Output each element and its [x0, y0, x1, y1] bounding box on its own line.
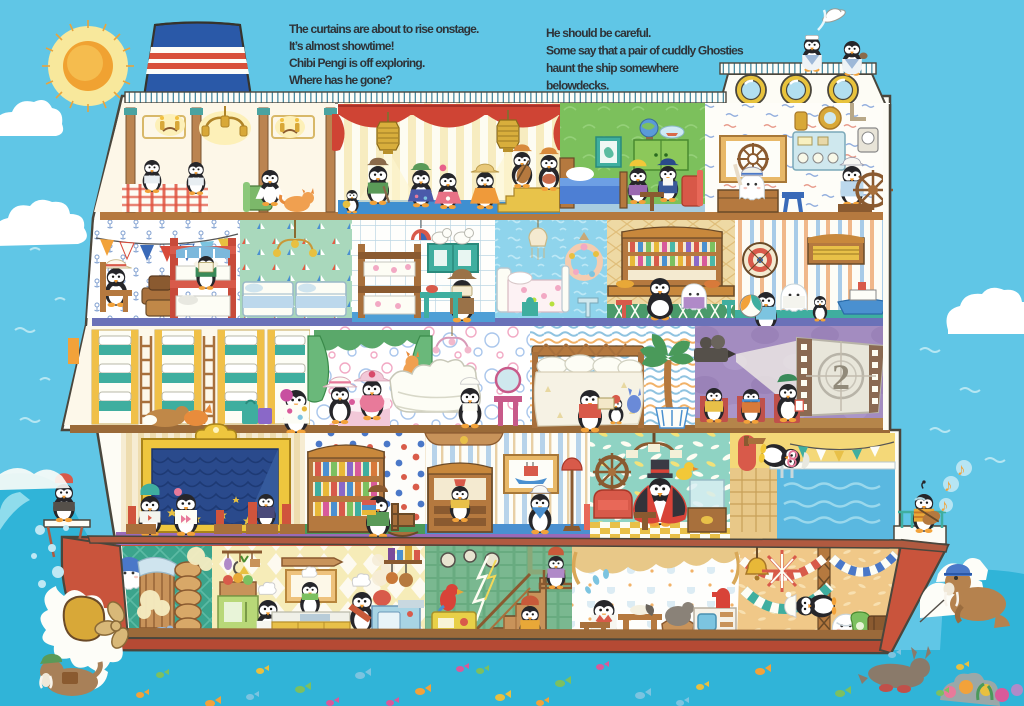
svg-text:Some say that a pair of cuddly: Some say that a pair of cuddly Ghosties — [546, 44, 744, 58]
svg-text:haunt the ship somewhere: haunt the ship somewhere — [546, 61, 679, 75]
svg-text:The curtains are about to rise: The curtains are about to rise onstage. — [289, 22, 479, 36]
svg-text:♪: ♪ — [940, 496, 949, 515]
svg-text:2: 2 — [832, 357, 850, 397]
svg-text:It’s almost showtime!: It’s almost showtime! — [289, 39, 394, 53]
svg-text:♪: ♪ — [957, 460, 966, 479]
svg-text:Where has he gone?: Where has he gone? — [289, 73, 392, 87]
svg-text:belowdecks.: belowdecks. — [546, 79, 609, 93]
svg-text:He should be careful.: He should be careful. — [546, 26, 651, 40]
svg-text:♪: ♪ — [944, 476, 953, 495]
svg-text:Chibi Pengi is off exploring.: Chibi Pengi is off exploring. — [289, 56, 425, 70]
